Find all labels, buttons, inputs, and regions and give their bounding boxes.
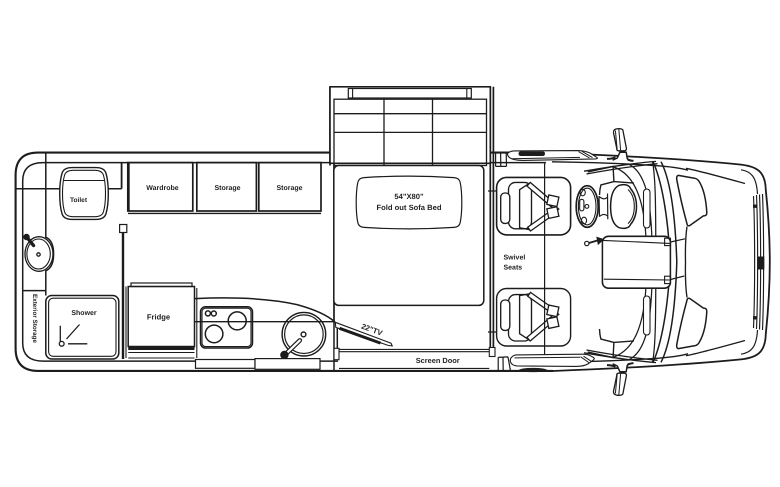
svg-text:Wardrobe: Wardrobe [146, 184, 179, 192]
svg-text:Swivel: Swivel [504, 254, 526, 262]
svg-text:Fridge: Fridge [147, 313, 170, 322]
svg-text:Storage: Storage [276, 185, 302, 192]
svg-text:Fold out Sofa Bed: Fold out Sofa Bed [377, 203, 442, 212]
svg-text:Screen Door: Screen Door [416, 356, 460, 365]
svg-text:54"X80": 54"X80" [394, 192, 424, 201]
svg-text:Toilet: Toilet [70, 197, 88, 204]
svg-text:Storage: Storage [214, 185, 240, 192]
svg-text:Exterior Storage: Exterior Storage [31, 294, 38, 343]
svg-text:Shower: Shower [71, 309, 97, 317]
svg-text:Seats: Seats [504, 265, 523, 272]
